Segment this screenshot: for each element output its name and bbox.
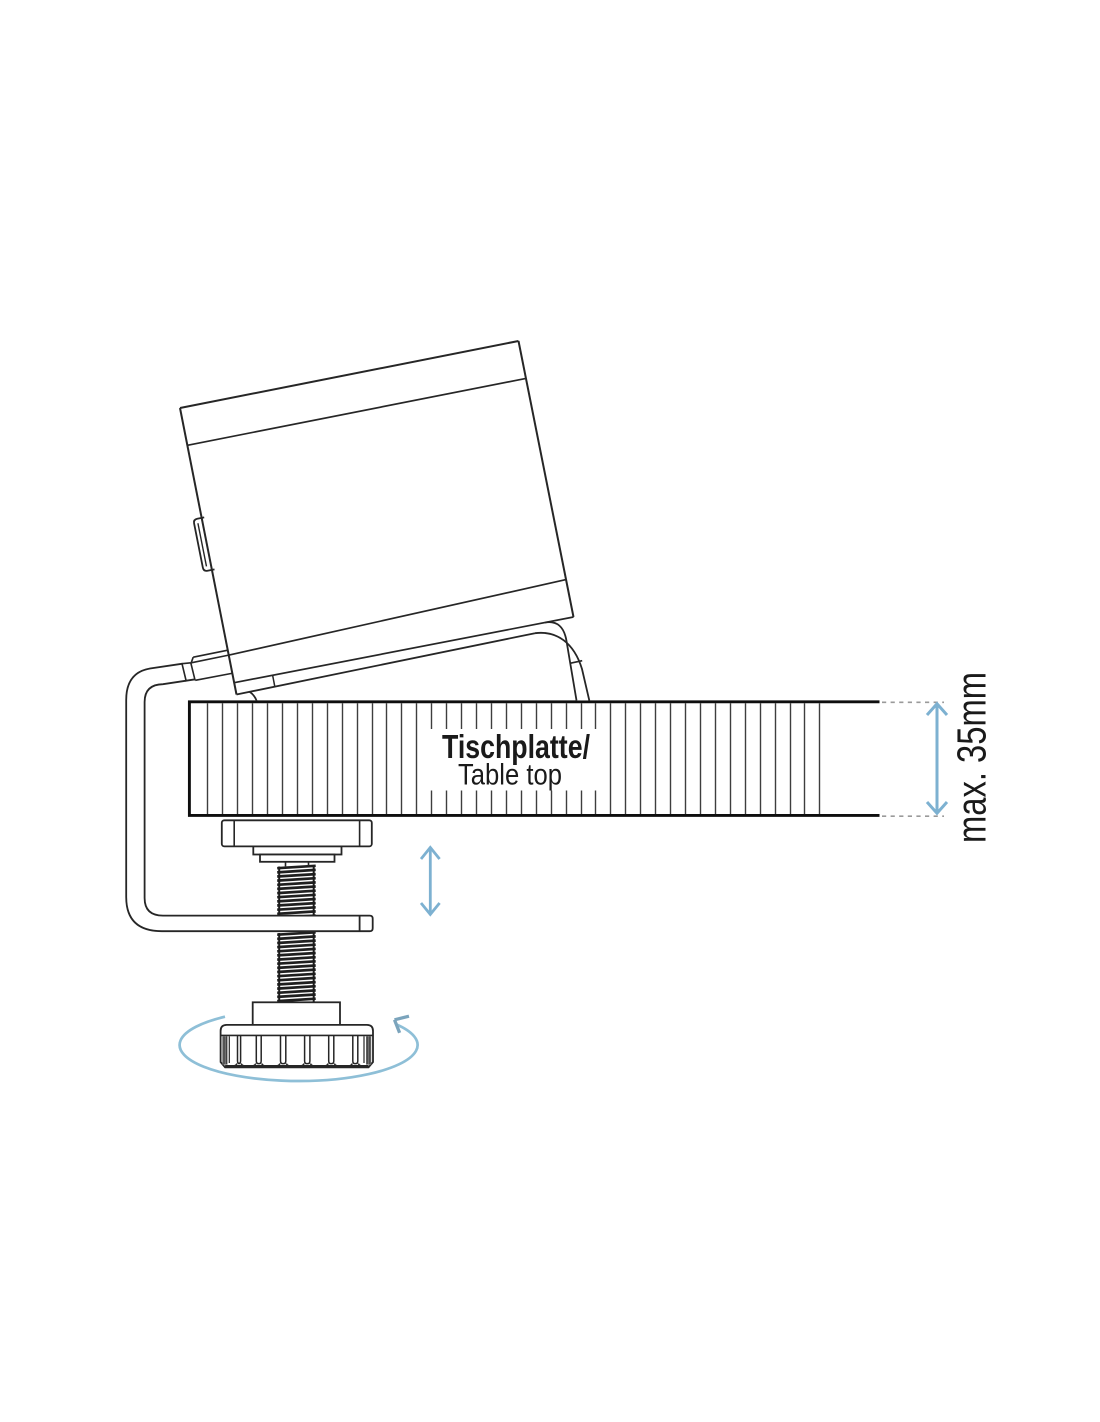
svg-text:max. 35mm: max. 35mm	[949, 672, 995, 843]
svg-text:Table top: Table top	[458, 759, 562, 792]
